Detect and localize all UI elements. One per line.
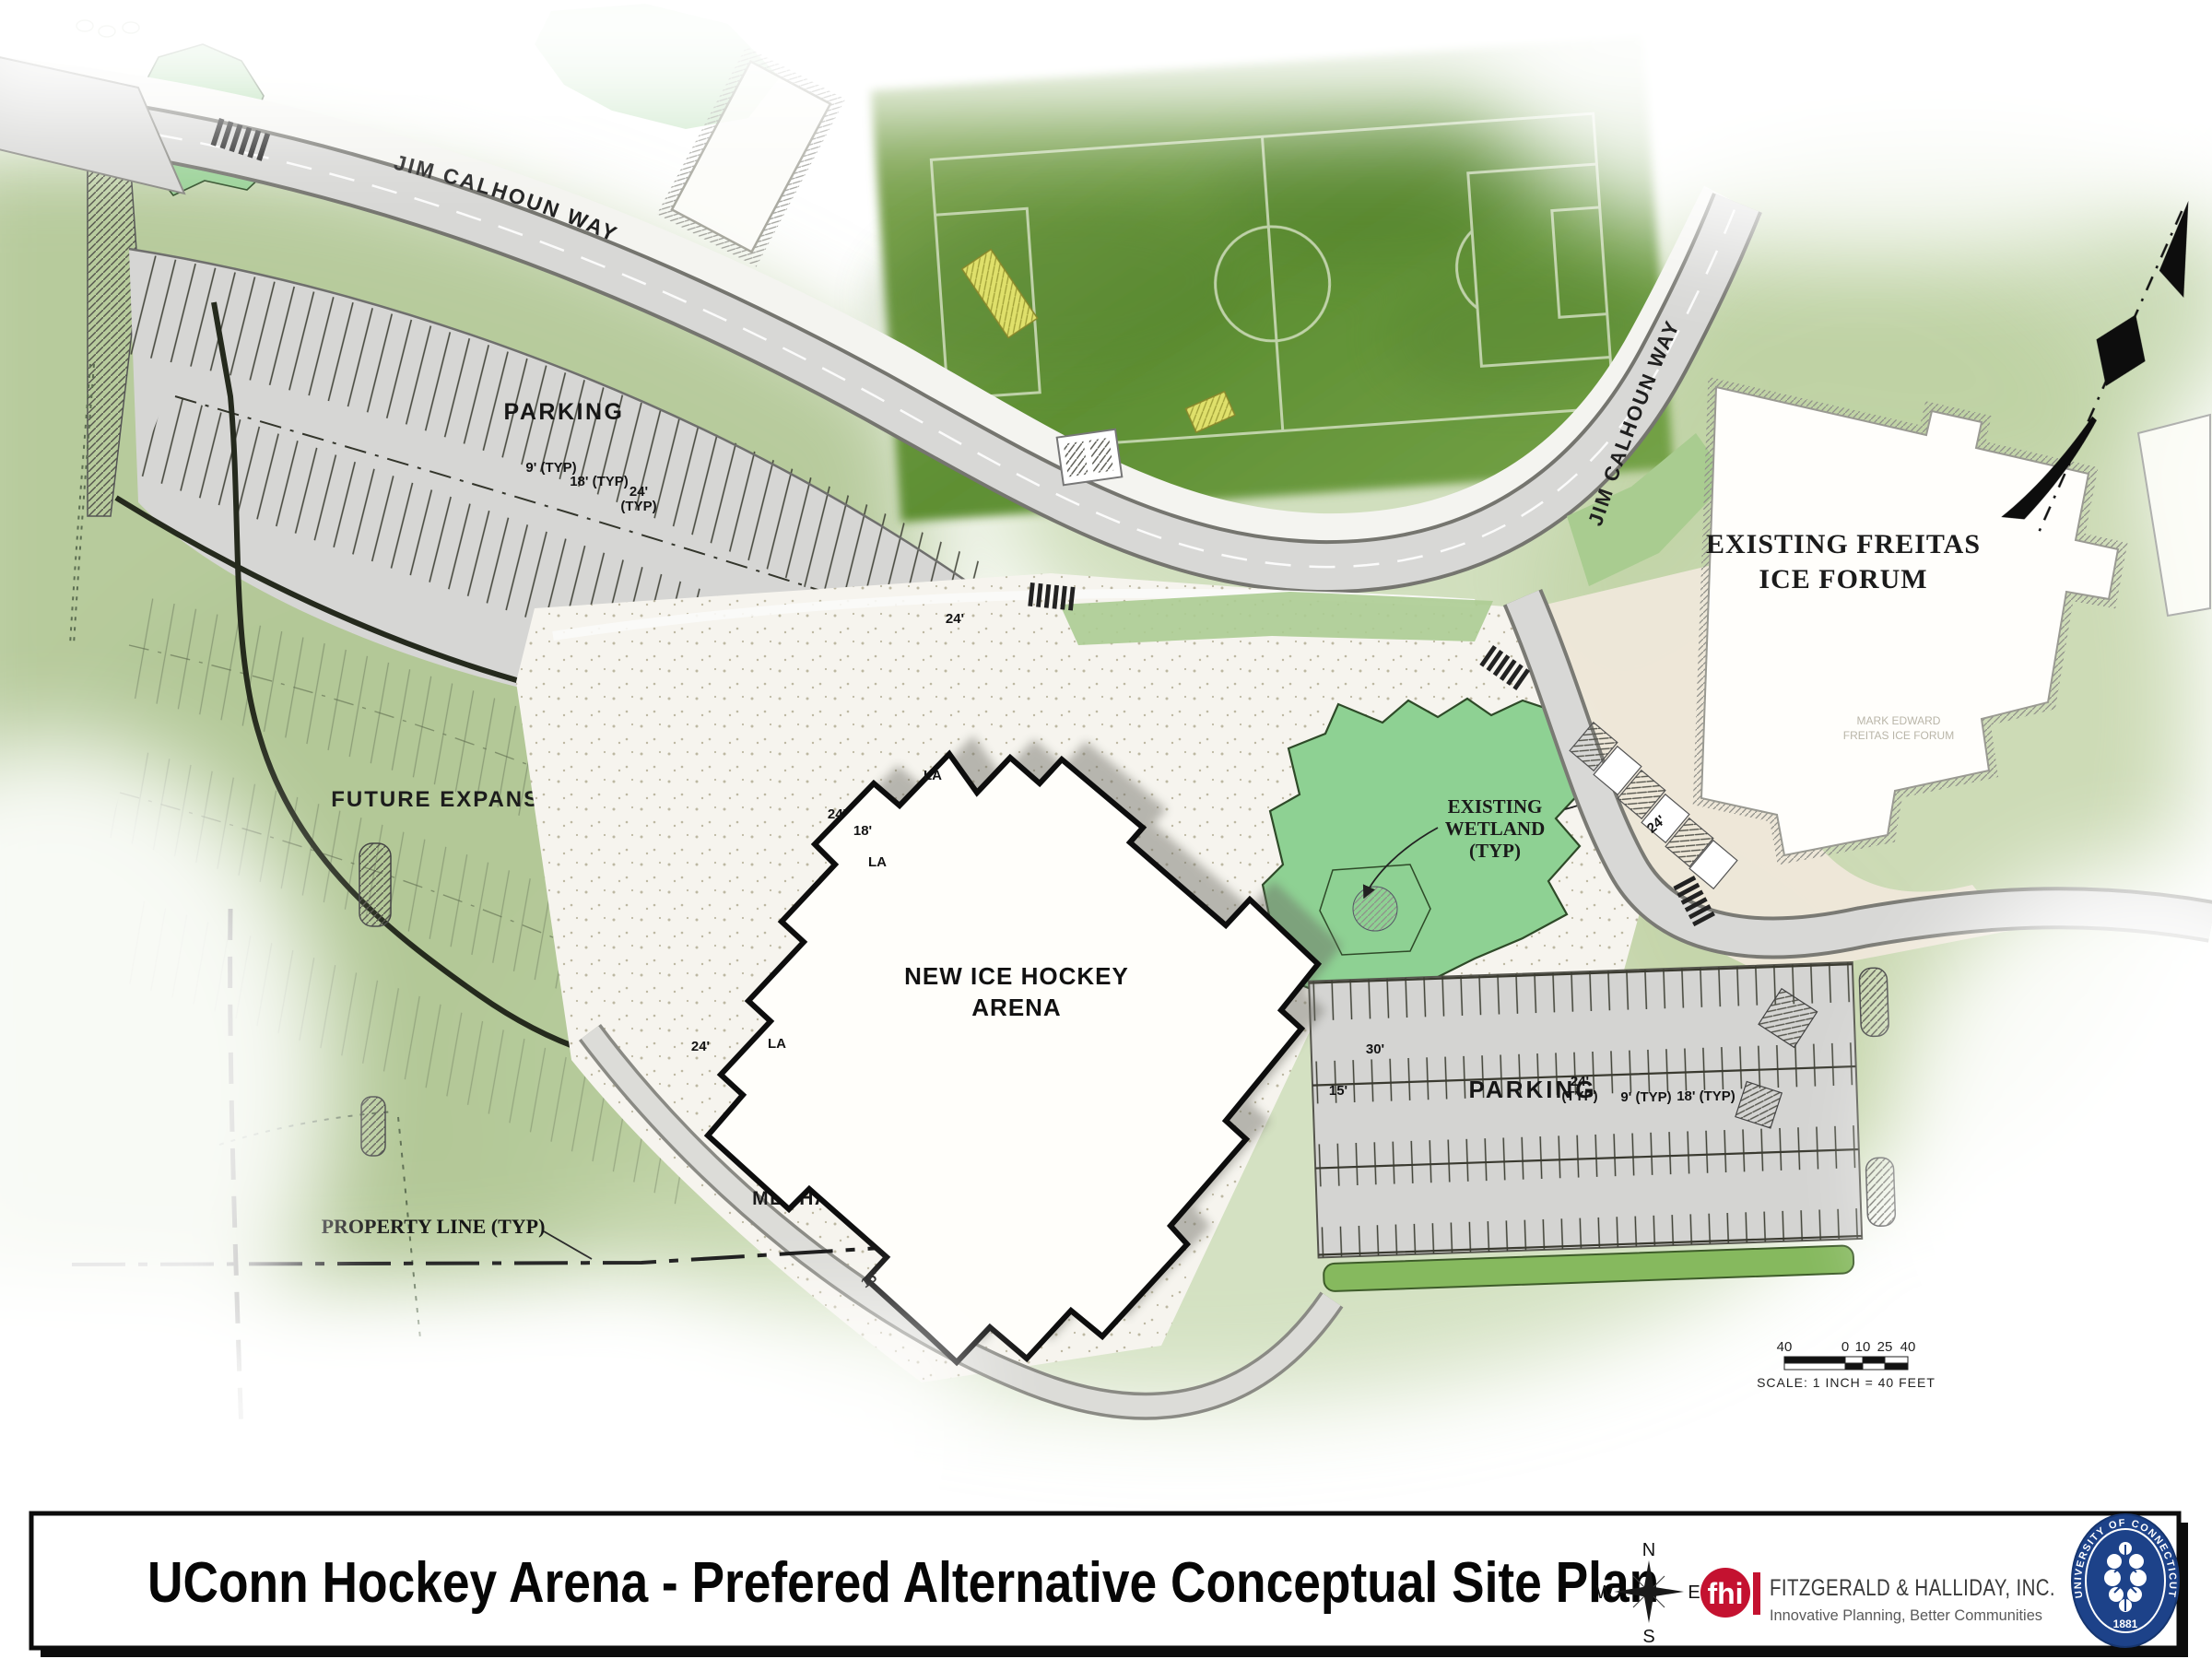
uconn-seal-icon: UNIVERSITY OF CONNECTICUT 1881: [2072, 1514, 2179, 1647]
freitas-inner-label2: FREITAS ICE FORUM: [1843, 729, 1954, 742]
svg-text:LA: LA: [768, 1036, 786, 1052]
upper-parking-label: PARKING: [504, 399, 625, 425]
svg-text:LA: LA: [924, 768, 942, 783]
svg-text:24': 24': [1571, 1074, 1589, 1089]
svg-text:24': 24': [946, 611, 964, 627]
svg-text:25: 25: [1877, 1339, 1893, 1355]
site-plan-canvas: FUTURE EXPANSION PARKING JIM CALHOUN WAY: [0, 0, 2212, 1659]
compass-n: N: [1642, 1540, 1655, 1560]
svg-text:(TYP): (TYP): [620, 499, 656, 514]
compass-w: W: [1596, 1583, 1614, 1603]
svg-text:LA: LA: [868, 854, 887, 870]
seal-year: 1881: [2113, 1618, 2138, 1630]
plaza-utility-building: [1057, 429, 1123, 485]
svg-text:EXISTING: EXISTING: [1448, 795, 1543, 818]
firm-tagline: Innovative Planning, Better Communities: [1770, 1606, 2042, 1624]
arena-label-line1: NEW ICE HOCKEY: [904, 962, 1129, 990]
svg-text:15': 15': [1329, 1083, 1347, 1099]
svg-text:0: 0: [1841, 1339, 1849, 1355]
compass-e: E: [1688, 1583, 1700, 1603]
svg-text:40: 40: [1900, 1339, 1916, 1355]
svg-text:24': 24': [629, 484, 648, 500]
sheet-title: UConn Hockey Arena - Prefered Alternativ…: [147, 1551, 1659, 1615]
freitas-inner-label1: MARK EDWARD: [1857, 714, 1941, 727]
property-line-label: PROPERTY LINE (TYP): [322, 1215, 546, 1238]
title-block: UConn Hockey Arena - Prefered Alternativ…: [31, 1513, 2188, 1657]
svg-text:(TYP): (TYP): [1469, 840, 1521, 862]
firm-name: FITZGERALD & HALLIDAY, INC.: [1770, 1575, 2055, 1601]
scale-caption: SCALE: 1 INCH = 40 FEET: [1757, 1375, 1935, 1390]
svg-text:24': 24': [828, 806, 846, 822]
fhi-logo-text: fhi: [1707, 1577, 1743, 1610]
freitas-label-line2: ICE FORUM: [1759, 564, 1927, 594]
freitas-label-line1: EXISTING FREITAS: [1706, 529, 1981, 559]
svg-text:18' (TYP): 18' (TYP): [1677, 1088, 1735, 1104]
svg-text:30': 30': [1366, 1041, 1384, 1057]
svg-text:40: 40: [1777, 1339, 1793, 1355]
svg-text:10: 10: [1855, 1339, 1871, 1355]
arena-label-line2: ARENA: [971, 994, 1061, 1021]
svg-text:(TYP): (TYP): [1561, 1088, 1597, 1104]
svg-text:24': 24': [691, 1039, 710, 1054]
svg-text:18': 18': [853, 823, 872, 839]
svg-text:WETLAND: WETLAND: [1445, 818, 1546, 840]
compass-s: S: [1642, 1627, 1654, 1647]
svg-text:9' (TYP): 9' (TYP): [1620, 1089, 1671, 1105]
svg-text:18' (TYP): 18' (TYP): [570, 474, 629, 489]
